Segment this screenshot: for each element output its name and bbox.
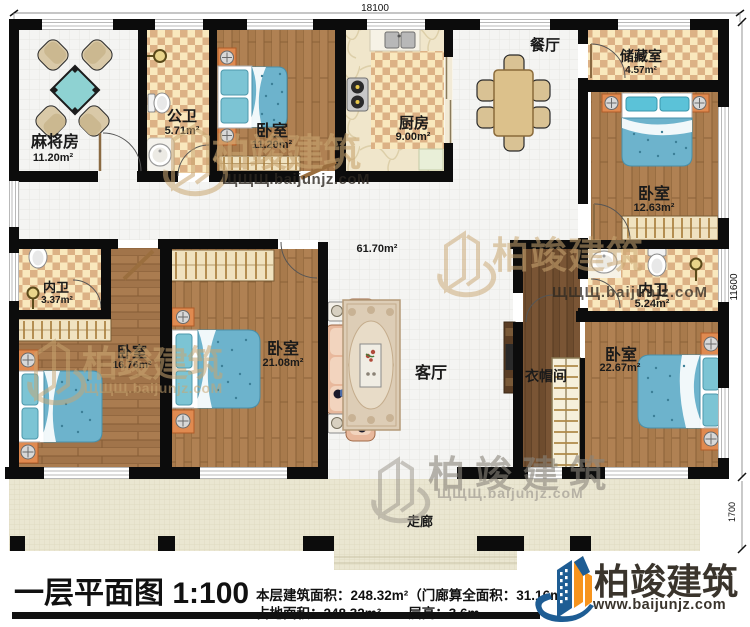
svg-text:柏竣建筑: 柏竣建筑 <box>212 133 361 175</box>
svg-text:18100: 18100 <box>361 3 389 14</box>
svg-text:4.57m²: 4.57m² <box>625 65 657 76</box>
svg-text:内卫: 内卫 <box>43 280 69 295</box>
svg-text:卧室: 卧室 <box>638 184 670 203</box>
svg-text:卧室: 卧室 <box>267 339 299 358</box>
svg-text:1700: 1700 <box>727 502 737 522</box>
svg-text:客厅: 客厅 <box>415 363 447 382</box>
svg-text:22.67m²: 22.67m² <box>600 362 641 374</box>
svg-text:储藏室: 储藏室 <box>619 48 662 64</box>
svg-text:餐厅: 餐厅 <box>530 36 560 54</box>
svg-text:衣帽间: 衣帽间 <box>525 368 567 384</box>
svg-text:21.08m²: 21.08m² <box>263 357 304 369</box>
svg-text:3.37m²: 3.37m² <box>41 295 73 306</box>
svg-text:厨房: 厨房 <box>399 114 429 132</box>
svg-text:柏竣建筑: 柏竣建筑 <box>594 561 738 602</box>
svg-text:麻将房: 麻将房 <box>30 132 79 151</box>
svg-text:61.70m²: 61.70m² <box>357 243 398 255</box>
svg-text:柏竣建筑: 柏竣建筑 <box>492 234 644 276</box>
svg-text:柏竣建筑: 柏竣建筑 <box>82 343 223 384</box>
svg-text:ЩЩЩ.bаijunjz.соМ: ЩЩЩ.bаijunjz.соМ <box>437 485 584 501</box>
svg-text:占地面积：248.32m² 层高：3.6m: 占地面积：248.32m² 层高：3.6m <box>256 605 480 621</box>
svg-text:本层建筑面积：248.32m²（门廊算全面积：31.16m²: 本层建筑面积：248.32m²（门廊算全面积：31.16m²） <box>256 587 580 603</box>
svg-text:11600: 11600 <box>729 273 740 301</box>
svg-text:12.63m²: 12.63m² <box>634 202 675 214</box>
svg-text:ЩЩЩ.bаijunjz.соМ: ЩЩЩ.bаijunjz.соМ <box>84 380 223 396</box>
svg-text:ЩЩЩ.bаijunjz.соМ: ЩЩЩ.bаijunjz.соМ <box>222 171 370 188</box>
svg-text:11.20m²: 11.20m² <box>33 152 74 164</box>
svg-text:公卫: 公卫 <box>167 108 197 125</box>
svg-text:www.baijunjz.com: www.baijunjz.com <box>592 597 726 613</box>
svg-text:9.00m²: 9.00m² <box>396 131 431 143</box>
svg-text:ЩЩЩ.bаijunjz.соМ: ЩЩЩ.bаijunjz.соМ <box>552 284 708 301</box>
svg-text:一层平面图 1:100: 一层平面图 1:100 <box>14 577 249 610</box>
